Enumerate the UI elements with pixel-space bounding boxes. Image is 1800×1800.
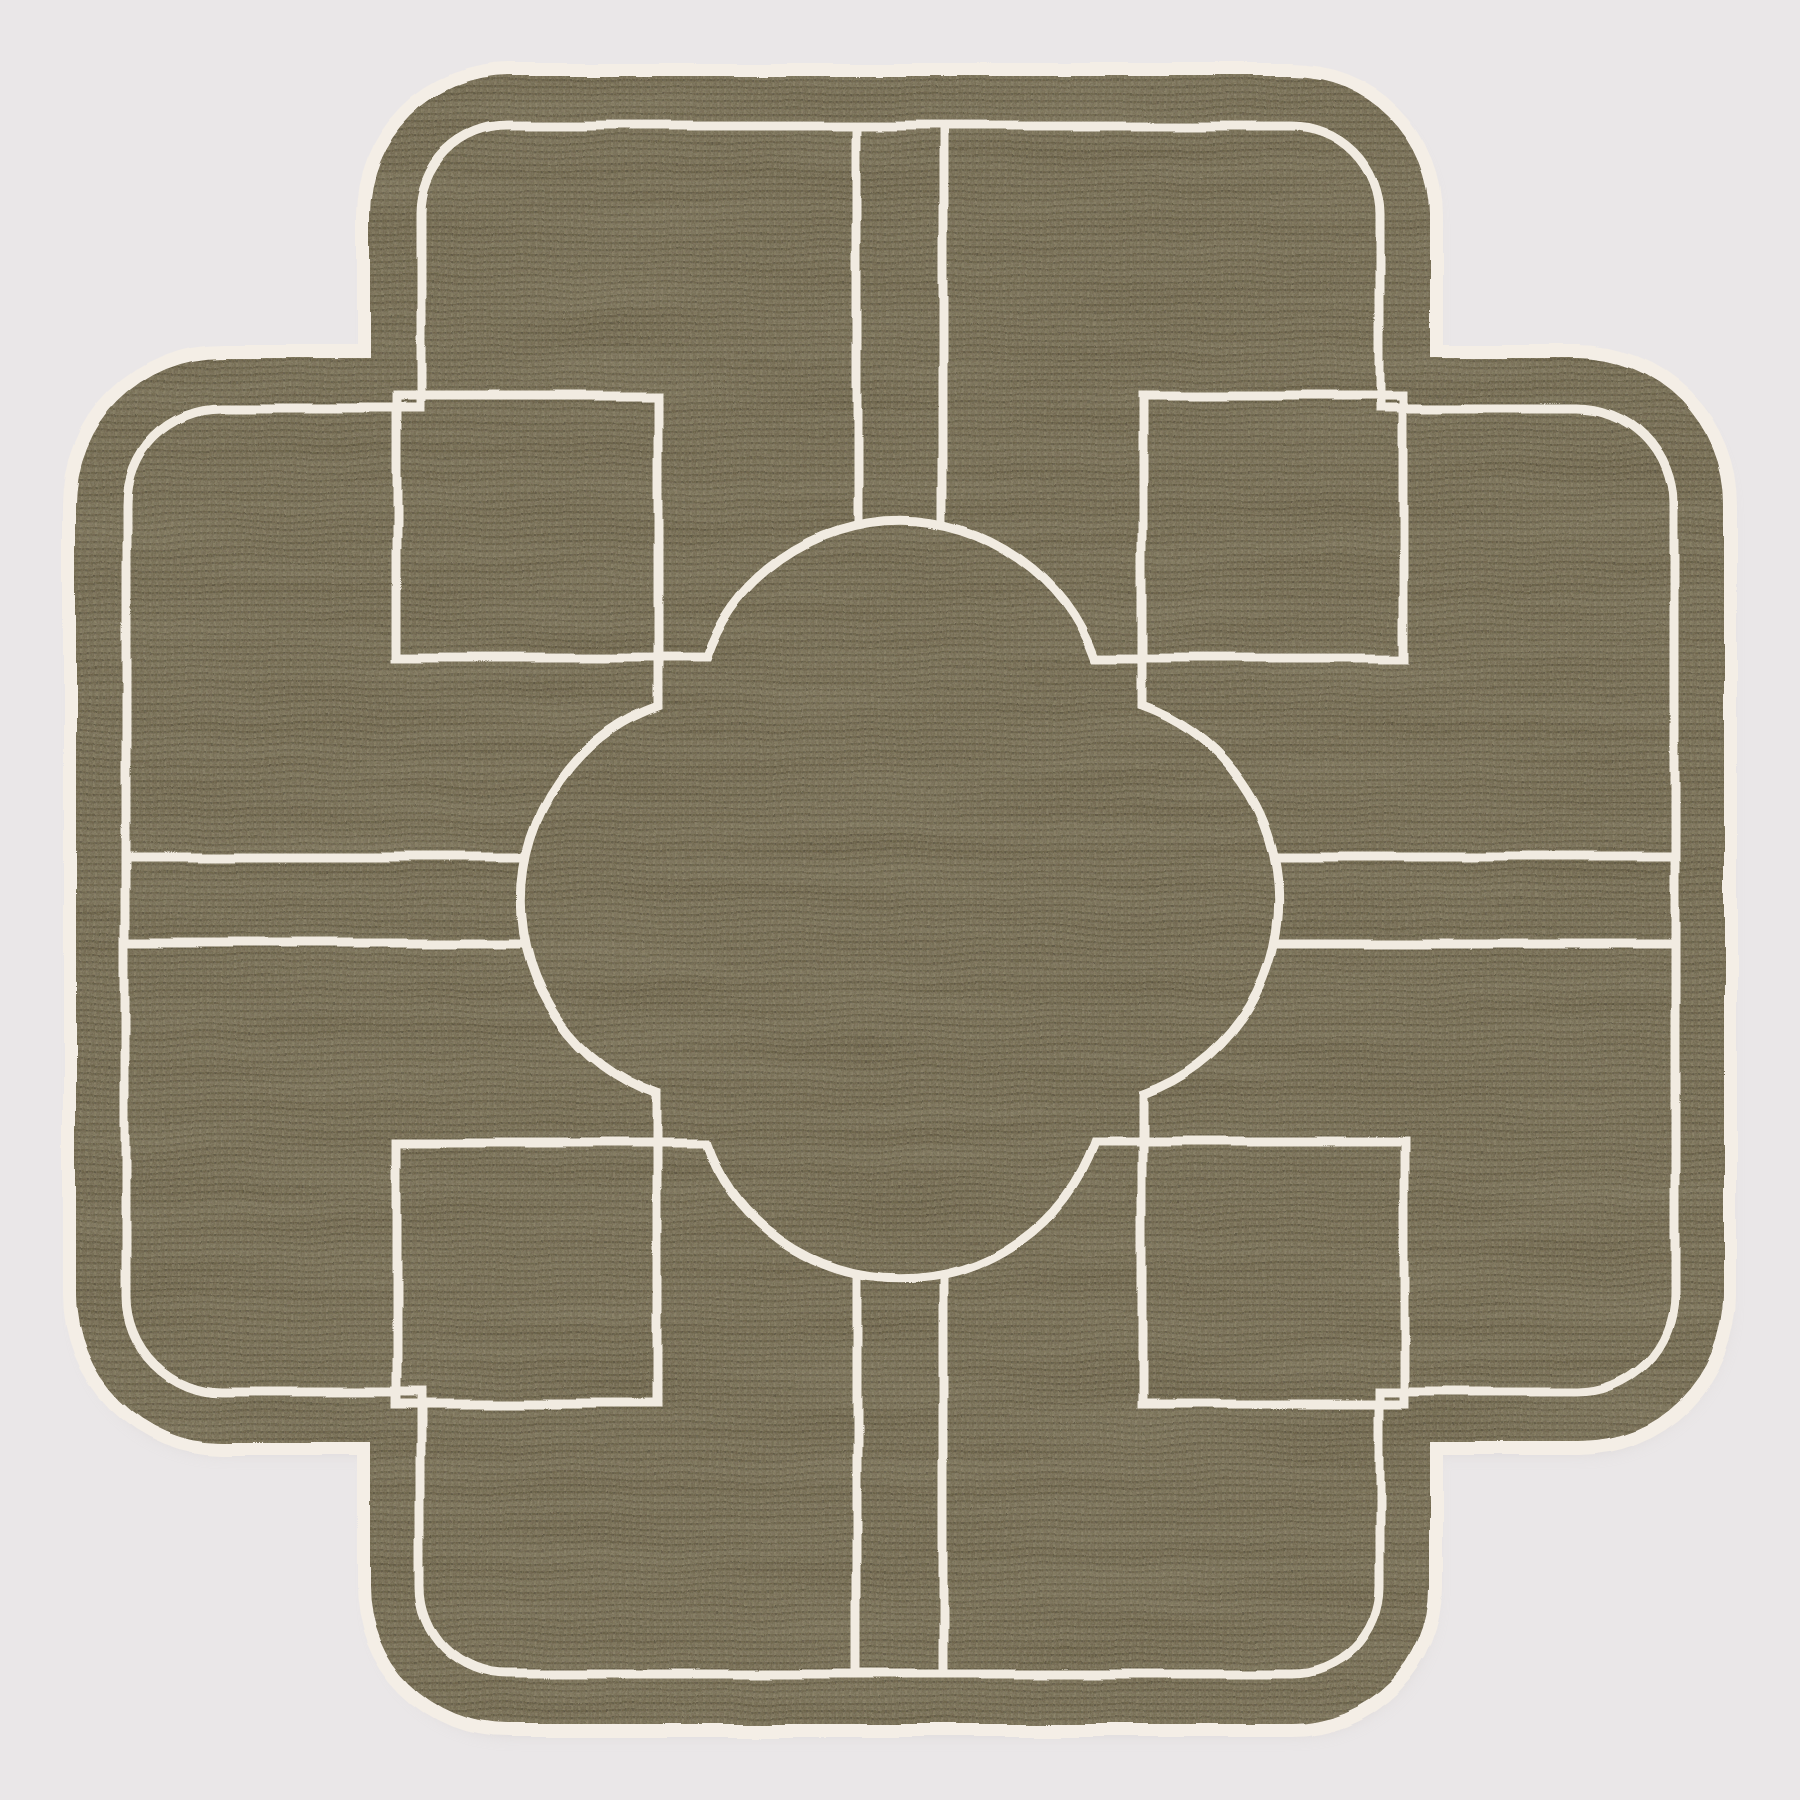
product-photo <box>0 0 1800 1800</box>
placemat-figure <box>0 0 1800 1800</box>
